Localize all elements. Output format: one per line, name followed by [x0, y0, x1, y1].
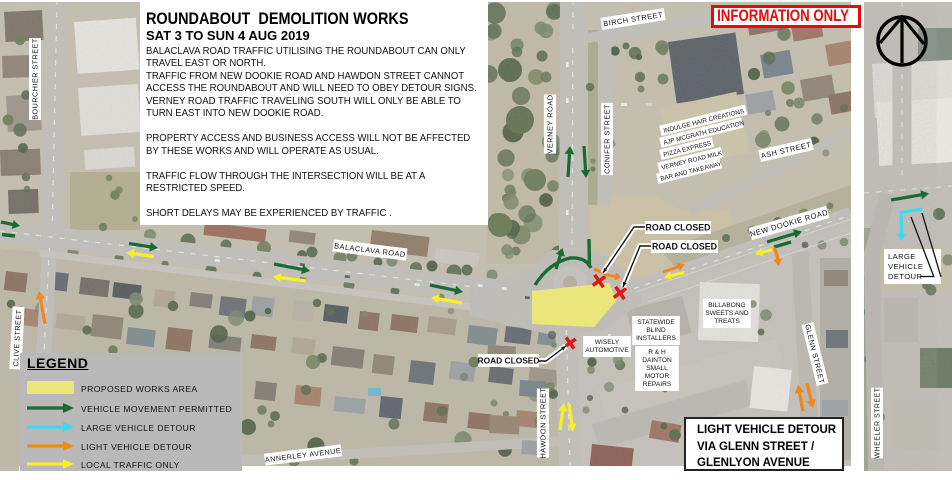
svg-text:STATEWIDE: STATEWIDE [637, 319, 675, 326]
svg-text:HAWDON STREET: HAWDON STREET [539, 387, 548, 458]
svg-text:TREATS: TREATS [714, 318, 740, 325]
svg-text:CONIFER STREET: CONIFER STREET [603, 104, 612, 174]
svg-text:VEHICLE: VEHICLE [888, 262, 923, 271]
svg-text:WISELY: WISELY [595, 339, 620, 346]
svg-text:R & H: R & H [648, 349, 666, 356]
svg-text:REPAIRS: REPAIRS [643, 381, 672, 388]
svg-text:MOTOR: MOTOR [645, 373, 670, 380]
svg-text:SMALL: SMALL [646, 365, 668, 372]
svg-text:WHEELER STREET: WHEELER STREET [875, 387, 882, 458]
svg-text:VERNEY ROAD: VERNEY ROAD [546, 94, 555, 153]
svg-text:ROAD CLOSED: ROAD CLOSED [478, 356, 540, 366]
svg-text:SWEETS AND: SWEETS AND [705, 310, 748, 317]
svg-text:INSTALLERS: INSTALLERS [636, 335, 676, 342]
svg-text:DETOUR: DETOUR [888, 272, 922, 281]
svg-text:BOURCHIER STREET: BOURCHIER STREET [31, 38, 40, 120]
svg-text:AUTOMOTIVE: AUTOMOTIVE [585, 347, 629, 354]
svg-text:LARGE: LARGE [888, 252, 916, 261]
svg-text:DAINTON: DAINTON [642, 357, 672, 364]
svg-text:BILLABONG: BILLABONG [708, 302, 745, 309]
svg-text:BLIND: BLIND [646, 327, 666, 334]
svg-text:ROAD CLOSED: ROAD CLOSED [645, 223, 710, 233]
svg-text:ROAD CLOSED: ROAD CLOSED [652, 242, 717, 252]
